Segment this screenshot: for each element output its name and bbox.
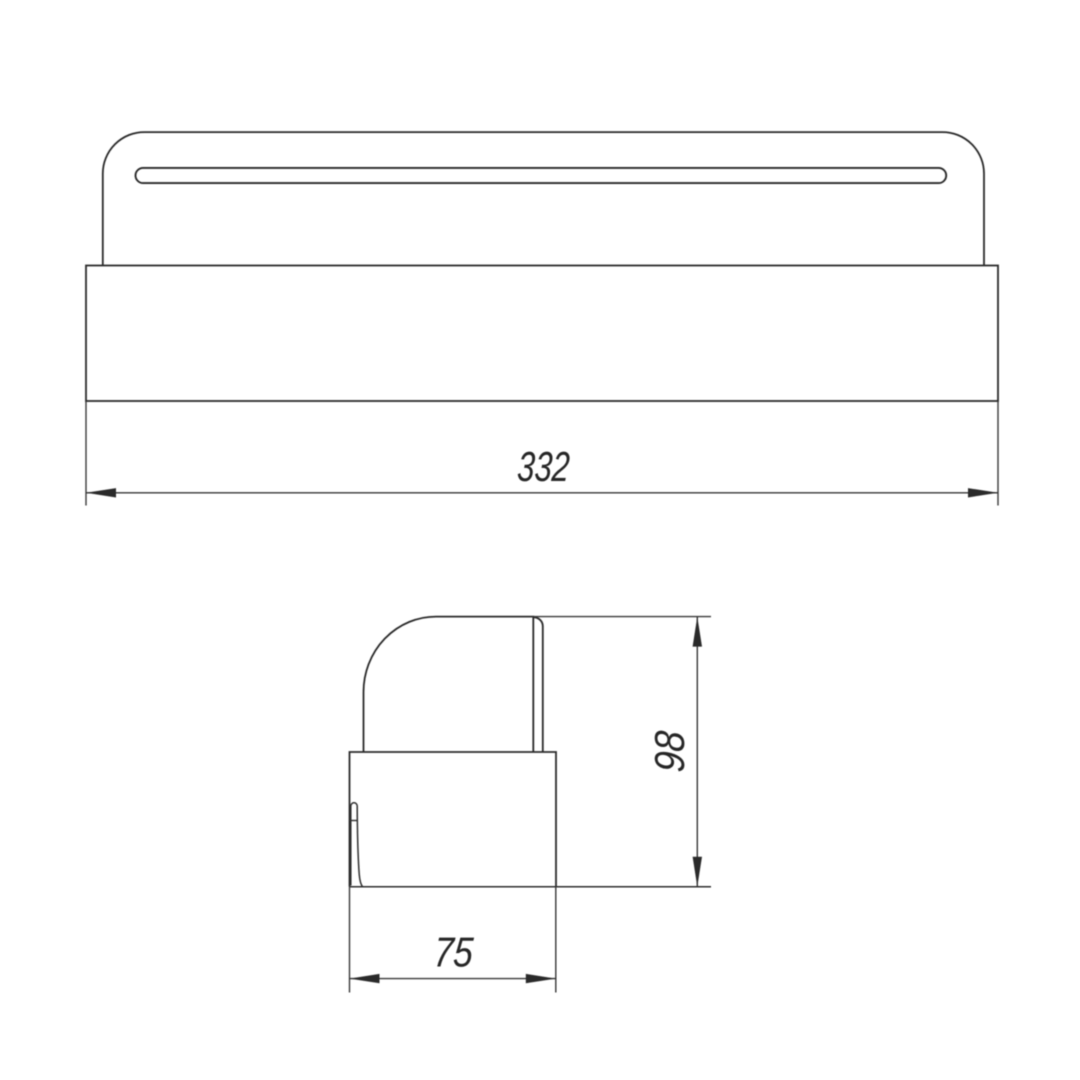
svg-text:98: 98 [646, 729, 693, 774]
svg-text:75: 75 [432, 929, 475, 976]
svg-text:332: 332 [516, 443, 571, 490]
